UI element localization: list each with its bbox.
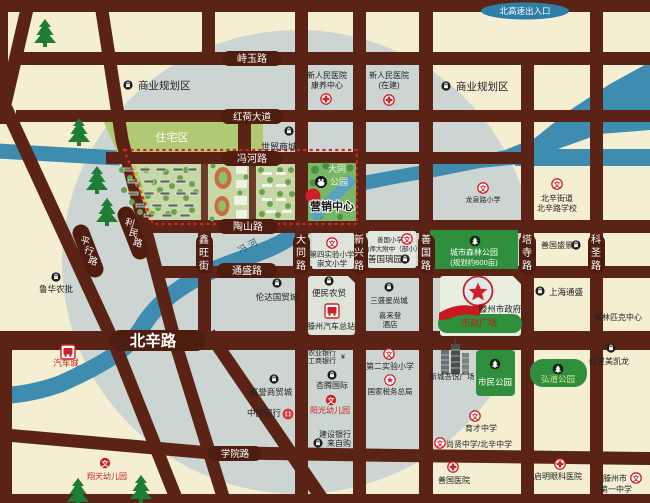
svg-text:伦达国贸城: 伦达国贸城 [256, 292, 299, 302]
svg-text:中国银行: 中国银行 [247, 408, 282, 418]
svg-text:工商银行: 工商银行 [308, 356, 336, 365]
svg-text:龙泉路小学: 龙泉路小学 [466, 195, 501, 204]
svg-text:鲁华农批: 鲁华农批 [39, 284, 74, 294]
svg-text:建设银行: 建设银行 [319, 429, 351, 439]
svg-text:新人民医院: 新人民医院 [369, 70, 409, 80]
svg-text:市民公园: 市民公园 [478, 377, 512, 387]
svg-text:公园: 公园 [330, 177, 348, 187]
svg-text:住宅区: 住宅区 [156, 130, 189, 144]
svg-text:滕州市: 滕州市 [603, 473, 627, 483]
svg-text:市政广场: 市政广场 [461, 317, 497, 328]
svg-text:营销中心: 营销中心 [310, 199, 354, 213]
svg-text:翔天幼儿园: 翔天幼儿园 [87, 471, 127, 481]
svg-text:善国盛景: 善国盛景 [541, 240, 573, 250]
svg-text:山师大附中（部小）: 山师大附中（部小） [363, 244, 422, 253]
svg-text:滕州汽车总站: 滕州汽车总站 [307, 321, 355, 331]
svg-text:汽车城: 汽车城 [53, 358, 79, 368]
svg-text:鑫旺街: 鑫旺街 [199, 233, 209, 272]
svg-text:崇文小学: 崇文小学 [317, 258, 347, 268]
svg-text:商业规划区: 商业规划区 [456, 80, 509, 93]
svg-text:北高速出入口: 北高速出入口 [499, 6, 550, 16]
svg-text:酒店: 酒店 [383, 319, 398, 329]
svg-text:红星美凯龙: 红星美凯龙 [589, 356, 629, 366]
svg-text:学院路: 学院路 [221, 448, 250, 460]
svg-text:新人民医院: 新人民医院 [307, 70, 347, 80]
svg-text:北辛路: 北辛路 [130, 331, 177, 350]
svg-text:三盛星尚城: 三盛星尚城 [370, 295, 408, 305]
svg-text:北辛街道: 北辛街道 [541, 193, 573, 203]
svg-text:善国医院: 善国医院 [438, 475, 470, 485]
svg-text:商业规划区: 商业规划区 [138, 79, 191, 92]
svg-text:塔寺路: 塔寺路 [522, 233, 532, 272]
svg-text:弘道公园: 弘道公园 [541, 374, 575, 384]
svg-text:善国小学: 善国小学 [377, 235, 404, 244]
svg-text:世贸商城: 世贸商城 [261, 141, 297, 152]
svg-text:育才中学: 育才中学 [465, 423, 497, 433]
svg-text:通盛路: 通盛路 [232, 264, 262, 277]
svg-text:善国璃园: 善国璃园 [368, 254, 402, 264]
svg-text:杏腾国际: 杏腾国际 [316, 380, 348, 390]
svg-text:新城吾悦广场: 新城吾悦广场 [430, 371, 475, 381]
svg-text:(在建): (在建) [378, 80, 400, 90]
svg-text:尚贤中学/北辛中学: 尚贤中学/北辛中学 [446, 439, 512, 449]
svg-text:喜来登: 喜来登 [379, 310, 402, 320]
svg-text:北辛路学校: 北辛路学校 [537, 203, 577, 213]
svg-text:上海通盛: 上海通盛 [549, 287, 584, 297]
svg-text:¥: ¥ [341, 354, 345, 361]
svg-text:冯河路: 冯河路 [237, 152, 267, 165]
svg-text:陶山路: 陶山路 [233, 220, 263, 233]
svg-text:国家税务总局: 国家税务总局 [368, 386, 413, 396]
svg-text:峙玉路: 峙玉路 [237, 52, 267, 65]
svg-text:(规划约600亩): (规划约600亩) [450, 257, 498, 267]
svg-text:大同路: 大同路 [296, 233, 306, 272]
svg-text:红荷大道: 红荷大道 [233, 111, 272, 123]
svg-text:滕州市政府: 滕州市政府 [479, 304, 522, 314]
svg-text:农业银行: 农业银行 [308, 348, 336, 357]
svg-text:康养中心: 康养中心 [311, 80, 343, 90]
svg-text:奥林匹克中心: 奥林匹克中心 [594, 312, 642, 322]
svg-text:城市森林公园: 城市森林公园 [450, 247, 498, 257]
svg-text:嘉誉商贸城: 嘉誉商贸城 [250, 387, 293, 397]
svg-text:便民农贸: 便民农贸 [312, 288, 346, 298]
svg-text:启明眼科医院: 启明眼科医院 [534, 471, 582, 481]
svg-text:善国路: 善国路 [421, 233, 431, 272]
svg-text:大同: 大同 [328, 163, 346, 174]
svg-text:阳光幼儿园: 阳光幼儿园 [310, 405, 350, 415]
svg-text:第二实验小学: 第二实验小学 [366, 361, 414, 371]
svg-text:科圣路: 科圣路 [591, 233, 601, 272]
svg-text:第四实验小学: 第四实验小学 [310, 249, 355, 259]
svg-text:第一中学: 第一中学 [600, 484, 632, 494]
svg-text:来自购: 来自购 [327, 438, 351, 448]
